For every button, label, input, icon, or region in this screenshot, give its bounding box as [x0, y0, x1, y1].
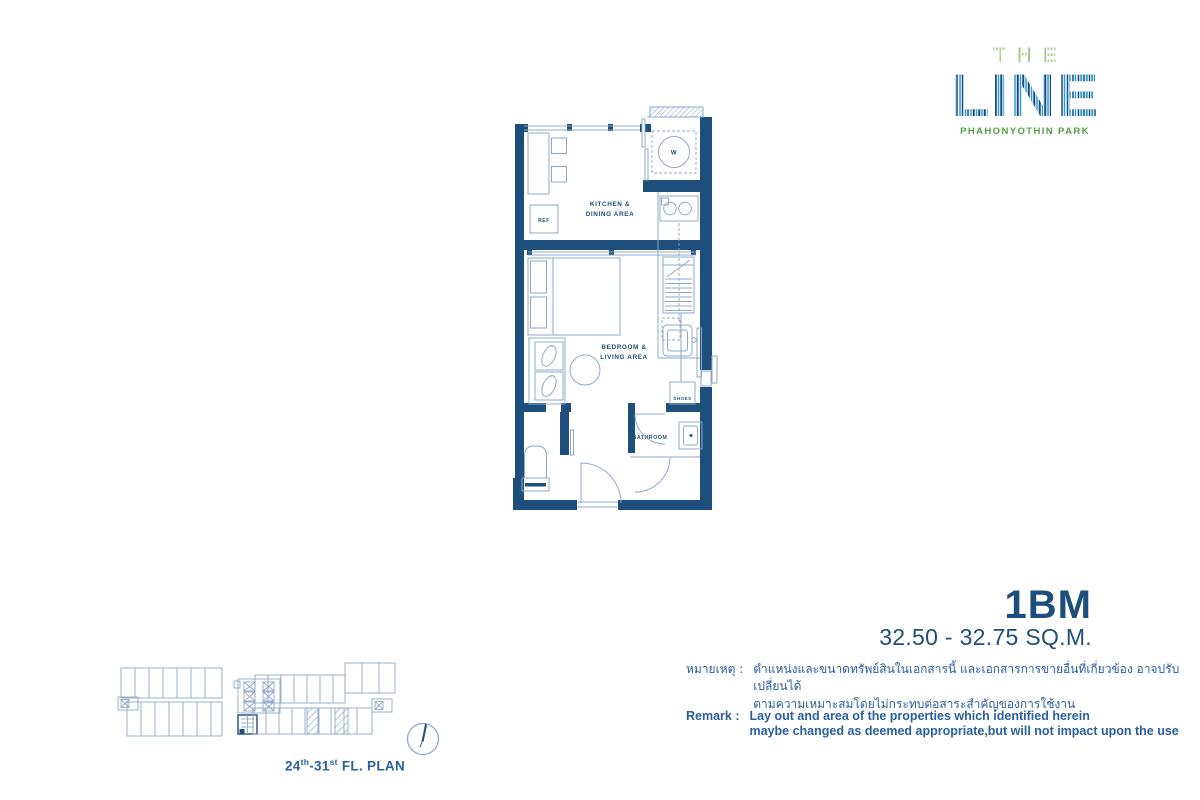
- remark-english-line2: maybe changed as deemed appropriate,but …: [750, 724, 1179, 738]
- north-arrow-icon: [403, 719, 443, 759]
- unit-floor-plan: W REF KITCHEN & DINING AREA: [513, 105, 719, 515]
- key-plan-caption: 24th-31st FL. PLAN: [255, 757, 435, 774]
- sliding-door-panel: [645, 149, 648, 180]
- dining-table: [528, 133, 549, 194]
- remark-thai: หมายเหตุ : ตำแหน่งและขนาดทรัพย์สินในเอกส…: [686, 661, 1200, 713]
- kitchen-label-2: DINING AREA: [586, 211, 635, 218]
- shoes-label: SHOES: [673, 396, 691, 401]
- entrance-door-swing: [581, 463, 621, 503]
- key-plan-left-wing: [118, 668, 222, 736]
- entrance: [571, 430, 622, 507]
- bedroom-living-area: BEDROOM & LIVING AREA: [528, 258, 648, 404]
- highlighted-unit: [335, 708, 348, 734]
- highlighted-unit: [307, 708, 319, 734]
- bedroom-label-1: BEDROOM &: [601, 344, 646, 351]
- balcony-grille: [650, 107, 703, 117]
- remark-english: Remark : Lay out and area of the propert…: [686, 709, 1179, 739]
- brand-logo: THE LINE PHAHONYOTHIN PARK: [950, 45, 1100, 137]
- bedroom-label-2: LIVING AREA: [600, 354, 648, 361]
- ref-label: REF: [538, 218, 550, 224]
- washer-label: W: [671, 151, 677, 157]
- floor-plan-page: THE LINE PHAHONYOTHIN PARK: [0, 0, 1200, 800]
- logo-line-text: LINE: [950, 71, 1099, 120]
- bathroom: BATHROOM: [630, 414, 702, 492]
- remark-english-line1: Lay out and area of the properties which…: [750, 709, 1090, 723]
- ac-ledge: [712, 356, 717, 383]
- remark-thai-line1: ตำแหน่งและขนาดทรัพย์สินในเอกสารนี้ และเอ…: [753, 662, 1179, 693]
- building-key-plan: [110, 655, 410, 755]
- balcony: W: [642, 107, 703, 180]
- shower-door-swing: [635, 457, 670, 492]
- door-leaf: [571, 430, 574, 455]
- remark-thai-label: หมายเหตุ :: [686, 661, 743, 678]
- remark-english-label: Remark :: [686, 709, 740, 724]
- burner: [664, 202, 677, 215]
- round-table: [570, 355, 600, 385]
- burner: [679, 202, 692, 215]
- unit-name: 1BM: [1005, 585, 1092, 625]
- chair: [552, 167, 567, 183]
- pillow: [531, 297, 547, 328]
- unit-area: 32.50 - 32.75 SQ.M.: [879, 626, 1092, 649]
- kitchen-label-1: KITCHEN &: [590, 201, 630, 208]
- pillow: [531, 261, 547, 293]
- utility-fixture: [522, 446, 549, 491]
- sliding-door-panel: [642, 119, 645, 147]
- chair: [552, 138, 567, 154]
- key-plan-core: [234, 679, 280, 734]
